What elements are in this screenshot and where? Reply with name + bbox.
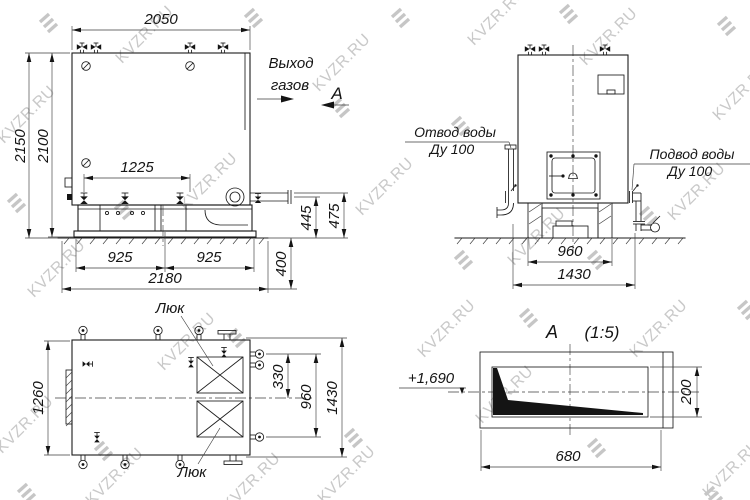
drawing-canvas: KVZR.RU	[0, 0, 750, 500]
section-title-scale: (1:5)	[585, 323, 620, 342]
water-outlet-size: Ду 100	[428, 141, 474, 157]
section-arrow-letter: А	[330, 84, 342, 103]
side-dim-base-width: 960	[557, 243, 583, 260]
plan-dim-width: 1260	[30, 381, 47, 415]
gas-outlet-label-line2: газов	[271, 77, 309, 94]
section-view-arrow-icon	[321, 102, 334, 109]
ash-chute-line	[205, 210, 248, 225]
plan-dim-port-offset: 330	[270, 364, 287, 390]
gas-flow-arrow-icon	[281, 96, 294, 103]
side-dim-total-width: 1430	[557, 266, 591, 283]
furnace-door-inner	[552, 158, 595, 193]
front-flange-outer	[226, 188, 244, 206]
wall-bracket	[65, 178, 72, 187]
front-dim-foundation-depth: 400	[273, 251, 290, 277]
front-dim-base-right: 925	[196, 249, 222, 266]
side-view: 960 1430 Отвод воды Ду 100 Подвод воды Д…	[405, 45, 750, 289]
hatch-bottom-label: Люк	[177, 464, 208, 481]
front-dim-height-total: 2150	[12, 129, 29, 164]
hatch-top-label: Люк	[155, 300, 186, 317]
section-dim-height: 200	[678, 379, 695, 406]
front-dim-nozzle-spacing: 1225	[120, 159, 154, 176]
plan-dim-total-depth: 1430	[324, 381, 341, 415]
plan-view: Люк Люк 1260 330 960 1430	[30, 300, 347, 481]
inspection-window	[598, 75, 624, 94]
section-view-a: А (1:5) +1,690 200 680	[399, 322, 702, 471]
section-title-letter: А	[545, 322, 558, 342]
front-dim-top-width: 2050	[143, 11, 178, 28]
gas-outlet-label-line1: Выход	[268, 55, 313, 72]
hatch-top	[197, 357, 243, 393]
ground-hatch	[64, 238, 264, 244]
water-outlet-label: Отвод воды	[414, 124, 496, 140]
hatch-bottom	[197, 401, 243, 437]
water-inlet-label: Подвод воды	[650, 146, 736, 162]
front-dim-base-total: 2180	[147, 270, 182, 287]
front-dim-height-body: 2100	[35, 129, 52, 164]
plan-dim-port-span: 960	[298, 384, 315, 410]
front-flange-inner	[230, 192, 240, 202]
furnace-door	[547, 152, 600, 199]
section-dim-width: 680	[555, 448, 581, 465]
ash-door	[553, 226, 588, 238]
front-dim-outlet-axis-height: 445	[298, 205, 315, 231]
front-dim-base-left: 925	[107, 249, 133, 266]
elevation-mark-label: +1,690	[408, 370, 455, 387]
front-dim-outlet-top-height: 475	[326, 203, 343, 229]
water-inlet-size: Ду 100	[666, 163, 712, 179]
wall-fitting	[67, 194, 72, 200]
elevation-arrow-icon	[460, 388, 465, 395]
boiler-body-front	[72, 53, 250, 205]
